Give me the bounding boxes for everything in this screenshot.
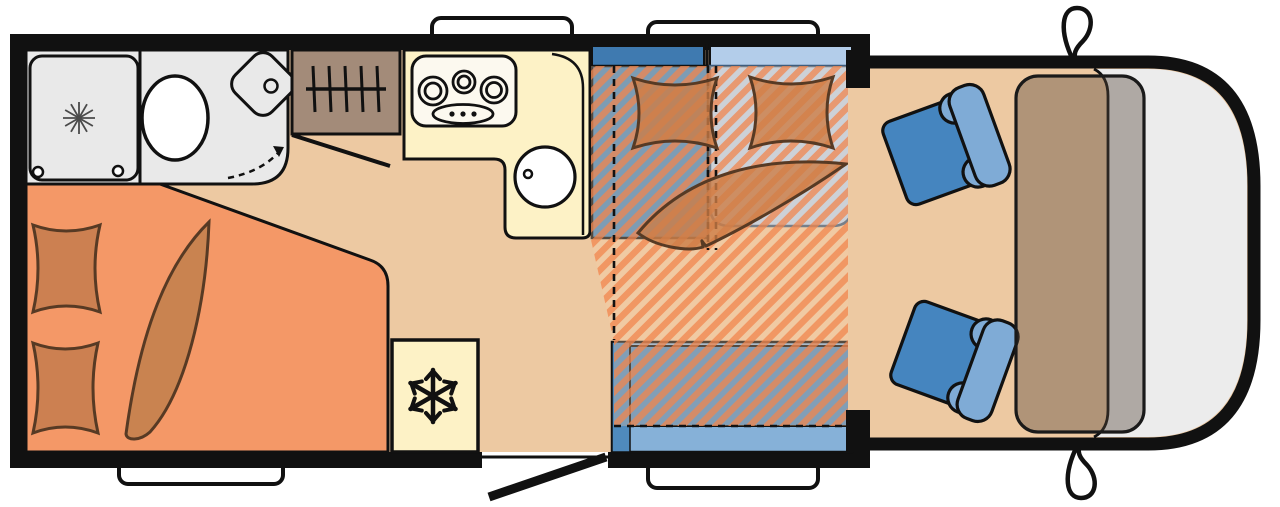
lounge-pillow-left bbox=[633, 78, 717, 148]
cab-walkway bbox=[848, 88, 882, 410]
toilet bbox=[142, 76, 208, 160]
dinette-sill-light bbox=[710, 46, 852, 66]
cab-wall-stub-bottom bbox=[846, 410, 866, 452]
cooktop-knobs bbox=[449, 111, 476, 116]
bed-pillow-bottom bbox=[33, 343, 98, 433]
bed-pillow-top bbox=[33, 225, 100, 312]
sink-drain bbox=[524, 170, 532, 178]
cab-wall-stub-top bbox=[846, 50, 866, 88]
floorplan-stage bbox=[0, 0, 1280, 507]
shower-fitting-left bbox=[33, 167, 43, 177]
lounge-pillow-right bbox=[750, 77, 833, 148]
floorplan-svg bbox=[0, 0, 1280, 507]
dinette-sill-dark bbox=[592, 46, 704, 66]
shower-fitting-right bbox=[113, 166, 123, 176]
washbasin-drain bbox=[265, 80, 278, 93]
dashboard bbox=[1016, 76, 1144, 432]
